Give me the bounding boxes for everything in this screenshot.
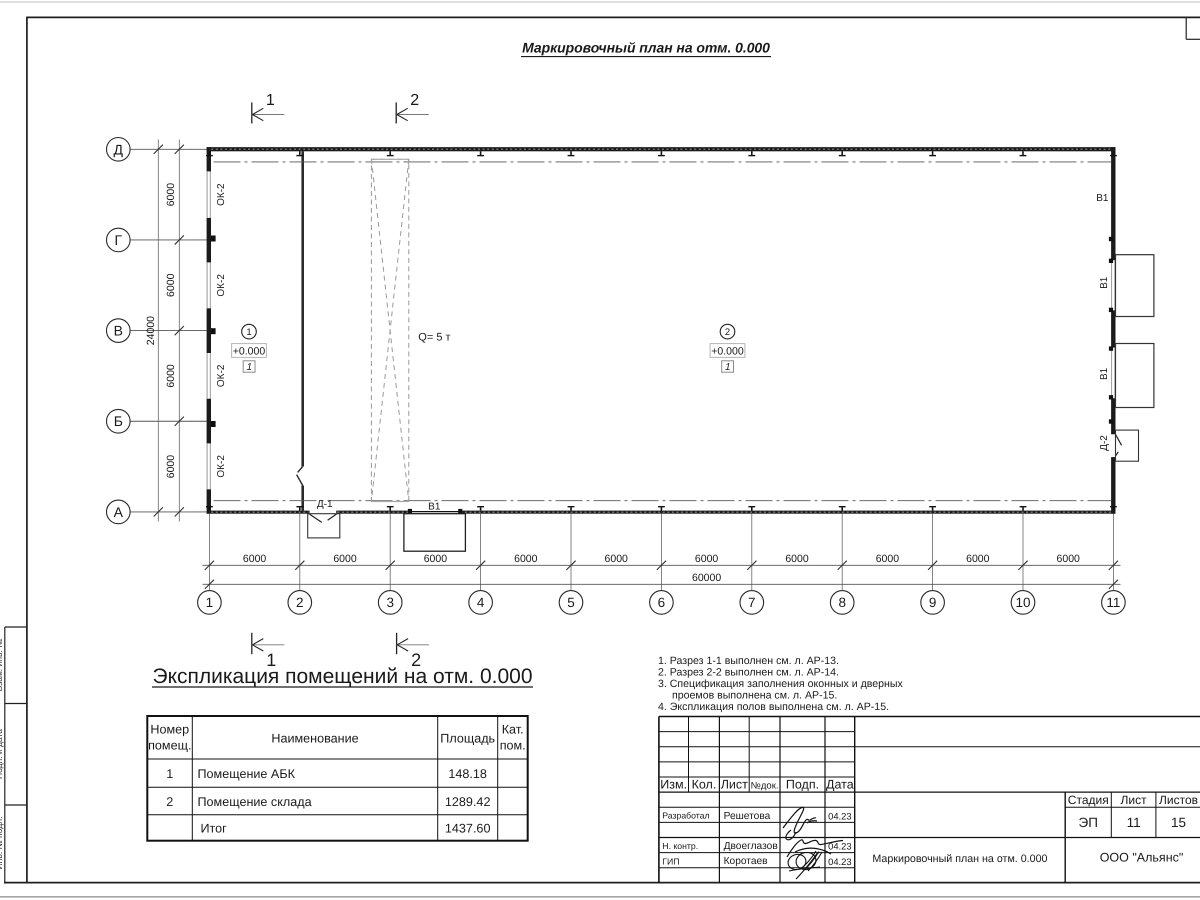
svg-text:1: 1 <box>247 362 253 373</box>
svg-text:ГИП: ГИП <box>662 856 679 866</box>
svg-text:6000: 6000 <box>243 553 267 565</box>
svg-text:В1: В1 <box>1099 367 1110 380</box>
svg-text:Площадь: Площадь <box>440 732 495 746</box>
svg-text:№док.: №док. <box>751 781 779 792</box>
svg-text:6000: 6000 <box>966 553 990 565</box>
svg-text:ОК-2: ОК-2 <box>216 274 227 297</box>
svg-text:Решетова: Решетова <box>724 811 771 822</box>
svg-text:6000: 6000 <box>876 553 900 565</box>
svg-text:Маркировочный план на отм. 0.0: Маркировочный план на отм. 0.000 <box>522 39 770 55</box>
svg-text:6000: 6000 <box>165 273 177 297</box>
svg-text:Д-2: Д-2 <box>1099 435 1110 451</box>
svg-text:Стадия: Стадия <box>1068 793 1109 807</box>
svg-text:4. Экспликация полов выполнена: 4. Экспликация полов выполнена см. л. АР… <box>658 701 889 713</box>
svg-text:Экспликация помещений на отм.: Экспликация помещений на отм. 0.000 <box>152 665 532 688</box>
svg-text:04.23: 04.23 <box>828 810 851 821</box>
svg-text:помещ.: помещ. <box>148 739 191 753</box>
svg-text:1: 1 <box>266 92 275 109</box>
svg-text:24000: 24000 <box>145 316 157 345</box>
svg-text:Листов: Листов <box>1159 793 1198 807</box>
svg-text:6000: 6000 <box>605 553 629 565</box>
svg-text:Н. контр.: Н. контр. <box>662 841 698 851</box>
svg-text:ОК-2: ОК-2 <box>216 183 227 206</box>
svg-text:04.23: 04.23 <box>828 856 851 867</box>
svg-text:В: В <box>114 323 123 339</box>
svg-text:Номер: Номер <box>150 723 189 737</box>
svg-text:11: 11 <box>1127 815 1141 830</box>
svg-text:10: 10 <box>1015 595 1030 610</box>
svg-text:1: 1 <box>725 362 731 373</box>
svg-text:6: 6 <box>658 595 666 610</box>
svg-text:3: 3 <box>386 595 394 610</box>
svg-text:Лист: Лист <box>721 778 748 792</box>
svg-text:6000: 6000 <box>424 553 448 565</box>
svg-text:Итог: Итог <box>201 822 228 836</box>
svg-text:6000: 6000 <box>785 553 809 565</box>
svg-text:1: 1 <box>206 595 214 610</box>
svg-text:1: 1 <box>166 767 173 781</box>
svg-text:пом.: пом. <box>500 739 526 753</box>
svg-text:1: 1 <box>246 327 251 338</box>
svg-text:6000: 6000 <box>165 183 177 207</box>
svg-text:В1: В1 <box>428 502 441 513</box>
svg-text:Подп. и дата: Подп. и дата <box>0 729 4 779</box>
svg-text:Помещение склада: Помещение склада <box>198 795 312 809</box>
svg-text:9: 9 <box>929 595 937 610</box>
svg-text:Коротаев: Коротаев <box>724 856 768 867</box>
svg-text:Подп.: Подп. <box>786 778 819 792</box>
svg-text:Лист: Лист <box>1121 793 1148 807</box>
svg-text:Изм.: Изм. <box>660 778 687 792</box>
svg-text:Кол.: Кол. <box>692 778 717 792</box>
svg-text:6000: 6000 <box>333 553 357 565</box>
svg-text:ОК-2: ОК-2 <box>216 364 227 387</box>
svg-text:8: 8 <box>838 595 846 610</box>
svg-text:15: 15 <box>1171 815 1186 830</box>
svg-text:ООО "Альянс": ООО "Альянс" <box>1100 851 1184 865</box>
svg-text:+0.000: +0.000 <box>711 345 744 357</box>
svg-text:Маркировочный план на отм. 0.0: Маркировочный план на отм. 0.000 <box>872 853 1047 865</box>
svg-text:ОК-2: ОК-2 <box>216 455 227 478</box>
svg-text:2: 2 <box>410 92 419 109</box>
svg-text:1. Разрез 1-1 выполнен см. л.: 1. Разрез 1-1 выполнен см. л. АР-13. <box>658 655 839 667</box>
svg-text:Помещение АБК: Помещение АБК <box>198 767 296 781</box>
svg-text:Двоеглазов: Двоеглазов <box>724 841 778 852</box>
svg-text:проемов выполнена см. л. АР-15: проемов выполнена см. л. АР-15. <box>672 689 837 701</box>
svg-text:Разработал: Разработал <box>662 811 709 821</box>
svg-text:Взам. инв. №: Взам. инв. № <box>0 639 4 692</box>
svg-text:148.18: 148.18 <box>448 767 487 781</box>
svg-text:6000: 6000 <box>695 553 719 565</box>
svg-text:2: 2 <box>725 327 730 338</box>
svg-text:Q= 5 т: Q= 5 т <box>418 332 450 344</box>
svg-text:60000: 60000 <box>692 572 721 584</box>
svg-text:А: А <box>114 504 124 520</box>
svg-text:6000: 6000 <box>1057 553 1081 565</box>
svg-text:2: 2 <box>296 595 304 610</box>
svg-text:ЭП: ЭП <box>1079 815 1098 830</box>
svg-text:В1: В1 <box>1099 276 1110 289</box>
svg-text:6000: 6000 <box>165 364 177 388</box>
svg-text:7: 7 <box>748 595 756 610</box>
svg-text:5: 5 <box>567 595 575 610</box>
svg-text:Наименование: Наименование <box>271 732 358 746</box>
svg-text:2. Разрез 2-2 выполнен см. л.: 2. Разрез 2-2 выполнен см. л. АР-14. <box>658 666 839 678</box>
svg-text:В1: В1 <box>1096 193 1109 204</box>
svg-text:6000: 6000 <box>514 553 538 565</box>
svg-text:+0.000: +0.000 <box>233 345 266 357</box>
svg-text:2: 2 <box>166 795 173 809</box>
svg-text:6000: 6000 <box>165 455 177 479</box>
svg-text:11: 11 <box>1106 595 1120 610</box>
svg-text:1437.60: 1437.60 <box>445 822 491 836</box>
svg-text:Кат.: Кат. <box>502 723 524 737</box>
svg-text:3. Спецификация заполнения око: 3. Спецификация заполнения оконных и две… <box>658 678 904 690</box>
svg-text:Б: Б <box>114 413 123 429</box>
svg-text:Д: Д <box>114 141 124 157</box>
svg-text:Инв. № подл.: Инв. № подл. <box>0 817 4 870</box>
svg-text:Дата: Дата <box>826 778 854 792</box>
svg-text:Д-1: Д-1 <box>317 499 333 510</box>
svg-text:4: 4 <box>477 595 485 610</box>
svg-text:Г: Г <box>115 232 123 248</box>
svg-text:1289.42: 1289.42 <box>445 795 491 809</box>
